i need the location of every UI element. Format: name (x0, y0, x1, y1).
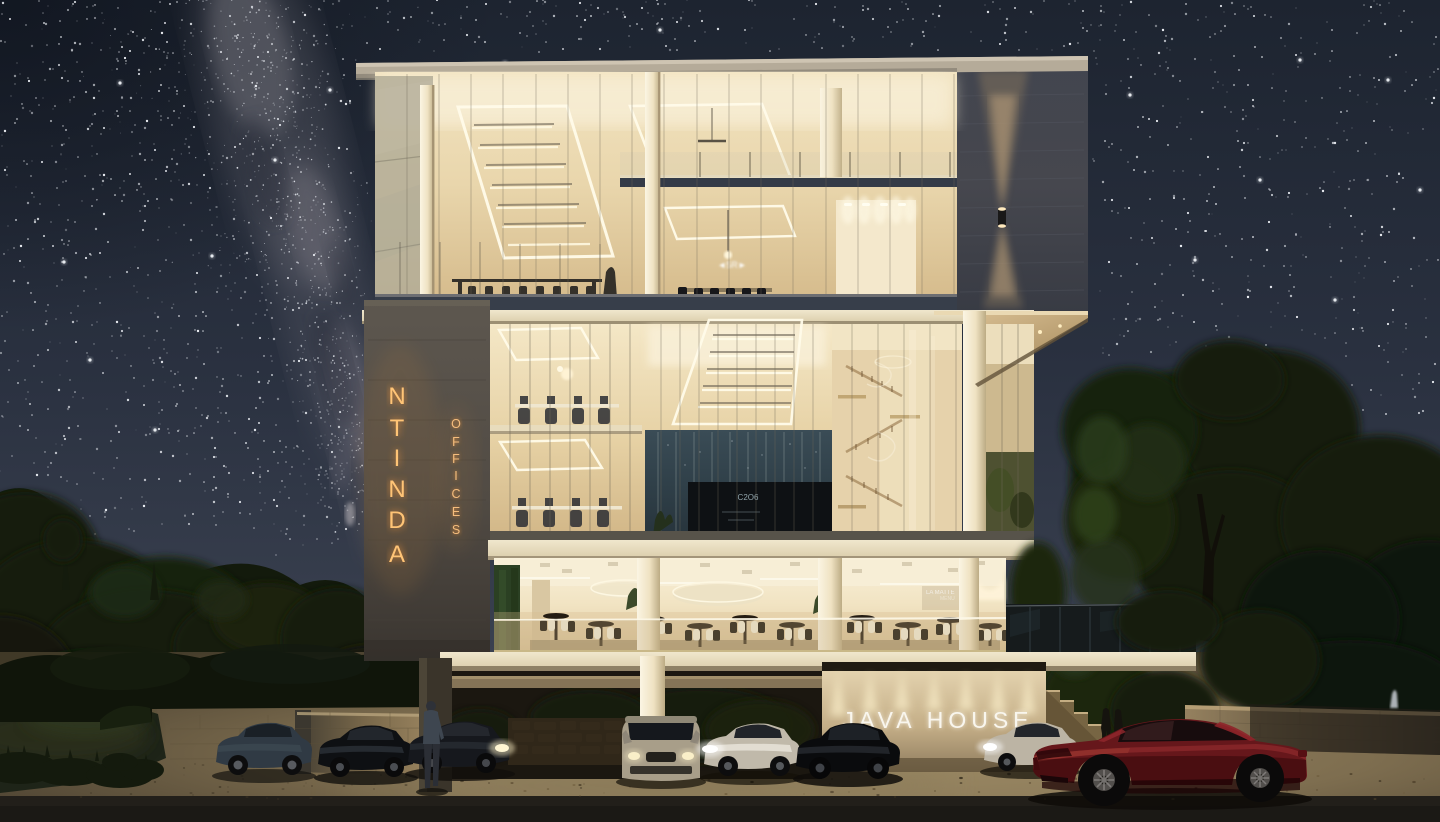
svg-text:MENU: MENU (940, 596, 955, 602)
svg-text:D: D (388, 507, 405, 534)
svg-text:S: S (452, 523, 460, 537)
svg-text:C: C (451, 487, 460, 501)
svg-text:O: O (451, 417, 461, 431)
svg-text:I: I (394, 445, 401, 472)
svg-text:◄5R►: ◄5R► (717, 260, 746, 270)
svg-text:I: I (454, 469, 457, 483)
svg-text:F: F (452, 435, 460, 449)
svg-text:N: N (388, 383, 405, 410)
svg-text:T: T (390, 415, 405, 442)
svg-text:F: F (452, 452, 460, 466)
svg-text:A: A (389, 541, 405, 568)
svg-text:N: N (388, 476, 405, 503)
svg-text:E: E (452, 505, 460, 519)
